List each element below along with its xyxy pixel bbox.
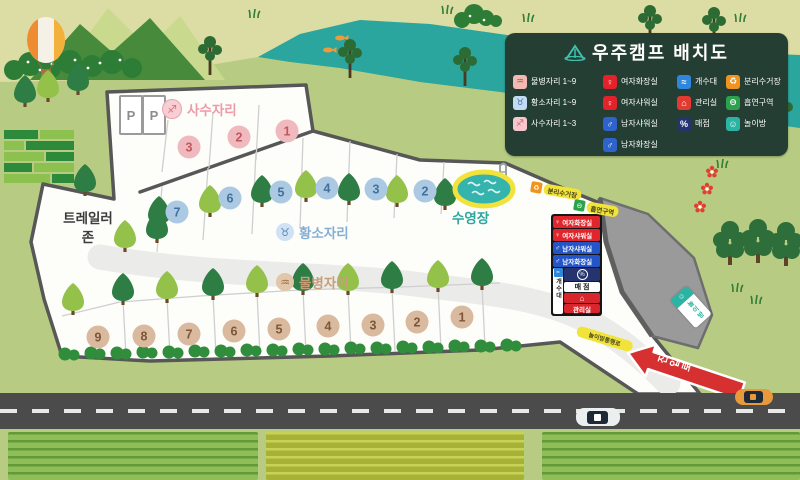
crop-field — [266, 432, 524, 480]
legend-item: ♉ 황소자리 1~9 — [513, 92, 601, 113]
tent-icon — [564, 43, 586, 61]
male-toilet-icon: ♂ — [555, 258, 560, 265]
crop-field — [8, 432, 258, 480]
taurus-icon: ♉ — [513, 96, 527, 110]
zone-label-aquarius: ♒ 물병자리 — [276, 272, 349, 292]
crop-field — [542, 432, 800, 480]
legend-item: ♒ 물병자리 1~9 — [513, 71, 601, 92]
site-circle: 4 — [316, 177, 339, 200]
legend-item: ♐ 사수자리 1~3 — [513, 113, 601, 134]
aquarius-icon: ♒ — [513, 75, 527, 89]
legend-item: % 매점 — [677, 113, 727, 134]
recycle-icon: ♻ — [726, 75, 740, 89]
office-icon: ⌂ — [564, 293, 600, 303]
recycle-icon: ♻ — [530, 181, 543, 194]
campground-map: 우주캠프 배치도 ♒ 물병자리 1~9 ♉ 황소자리 1~9 ♐ 사수자리 1~… — [0, 0, 800, 480]
legend-item: ⌂ 관리실 — [677, 92, 727, 113]
site-circle: 2 — [414, 180, 437, 203]
female-toilet-icon: ♀ — [555, 219, 560, 226]
facility-row: ♂ 남자화장실 — [553, 255, 600, 267]
site-circle: 6 — [223, 320, 246, 343]
smoking-icon: ⊖ — [573, 199, 586, 212]
site-circle: 9 — [87, 326, 110, 349]
site-circle: 5 — [268, 318, 291, 341]
site-circle: 1 — [276, 120, 299, 143]
legend-title: 우주캠프 배치도 — [505, 39, 788, 65]
store-icon: % — [677, 117, 691, 131]
female-shower-icon: ♀ — [555, 232, 560, 239]
legend-column-services: ≈ 개수대 ⌂ 관리실 % 매점 — [677, 71, 727, 134]
site-circle: 2 — [228, 126, 251, 149]
male-shower-icon: ♂ — [603, 117, 617, 131]
facilities-building: ♀ 여자화장실 ♀ 여자샤워실 ♂ 남자샤워실 ♂ 남자화장실 ≈ 개수대 % … — [551, 214, 602, 316]
legend-item: ♂ 남자샤워실 — [603, 113, 675, 134]
male-toilet-icon: ♂ — [603, 138, 617, 152]
site-circle: 2 — [406, 311, 429, 334]
white-car-icon — [576, 408, 620, 426]
trailer-zone-label: 트레일러 존 — [48, 210, 128, 248]
legend-panel: 우주캠프 배치도 ♒ 물병자리 1~9 ♉ 황소자리 1~9 ♐ 사수자리 1~… — [505, 33, 788, 156]
pool-label: 수영장 — [452, 207, 489, 227]
legend-column-washrooms: ♀ 여자화장실 ♀ 여자샤워실 ♂ 남자샤워실 ♂ 남자화장실 — [603, 71, 675, 155]
main-road — [0, 393, 800, 429]
store-label: 매 점 — [564, 282, 600, 292]
site-circle: 1 — [451, 306, 474, 329]
site-circle: 3 — [362, 314, 385, 337]
parking-spot: P — [119, 95, 143, 135]
sink-strip: ≈ 개수대 — [553, 268, 563, 314]
site-circle: 7 — [166, 201, 189, 224]
site-circle: 4 — [317, 315, 340, 338]
site-circle: 3 — [178, 136, 201, 159]
legend-item: ♂ 남자화장실 — [603, 134, 675, 155]
zone-label-sagittarius: ♐ 사수자리 — [162, 99, 237, 119]
office-icon: ⌂ — [677, 96, 691, 110]
female-shower-icon: ♀ — [603, 96, 617, 110]
legend-item: ♀ 여자화장실 — [603, 71, 675, 92]
site-circle: 8 — [133, 325, 156, 348]
orange-car-icon — [735, 389, 773, 405]
legend-item: ♀ 여자샤워실 — [603, 92, 675, 113]
store-office-column: % 매 점 ⌂ 관리실 — [564, 268, 600, 314]
facility-row: ♂ 남자샤워실 — [553, 242, 600, 254]
legend-column-zones: ♒ 물병자리 1~9 ♉ 황소자리 1~9 ♐ 사수자리 1~3 — [513, 71, 601, 134]
sink-icon: ≈ — [554, 268, 563, 277]
sagittarius-icon: ♐ — [162, 99, 182, 119]
legend-item: ≈ 개수대 — [677, 71, 727, 92]
legend-item: ☺ 놀이방 — [726, 113, 786, 134]
aquarius-icon: ♒ — [276, 273, 294, 291]
female-toilet-icon: ♀ — [603, 75, 617, 89]
zone-label-taurus: ♉ 황소자리 — [276, 222, 349, 242]
legend-column-facilities: ♻ 분리수거장 ⊖ 흡연구역 ☺ 놀이방 — [726, 71, 786, 134]
site-circle: 6 — [219, 187, 242, 210]
legend-item: ⊖ 흡연구역 — [726, 92, 786, 113]
facility-row: ♀ 여자샤워실 — [553, 229, 600, 241]
legend-title-text: 우주캠프 배치도 — [592, 39, 729, 65]
smoking-icon: ⊖ — [726, 96, 740, 110]
sink-icon: ≈ — [677, 75, 691, 89]
playroom-icon: ☺ — [726, 117, 740, 131]
store-icon: % — [564, 268, 600, 281]
site-circle: 7 — [178, 323, 201, 346]
facility-row: ♀ 여자화장실 — [553, 216, 600, 228]
road-center-line — [0, 409, 800, 413]
site-circle: 3 — [365, 178, 388, 201]
office-label: 관리실 — [564, 304, 600, 313]
male-shower-icon: ♂ — [555, 245, 560, 252]
legend-item: ♻ 분리수거장 — [726, 71, 786, 92]
sagittarius-icon: ♐ — [513, 117, 527, 131]
site-circle: 5 — [270, 181, 293, 204]
taurus-icon: ♉ — [276, 223, 294, 241]
facility-bottom: ≈ 개수대 % 매 점 ⌂ 관리실 — [553, 268, 600, 314]
